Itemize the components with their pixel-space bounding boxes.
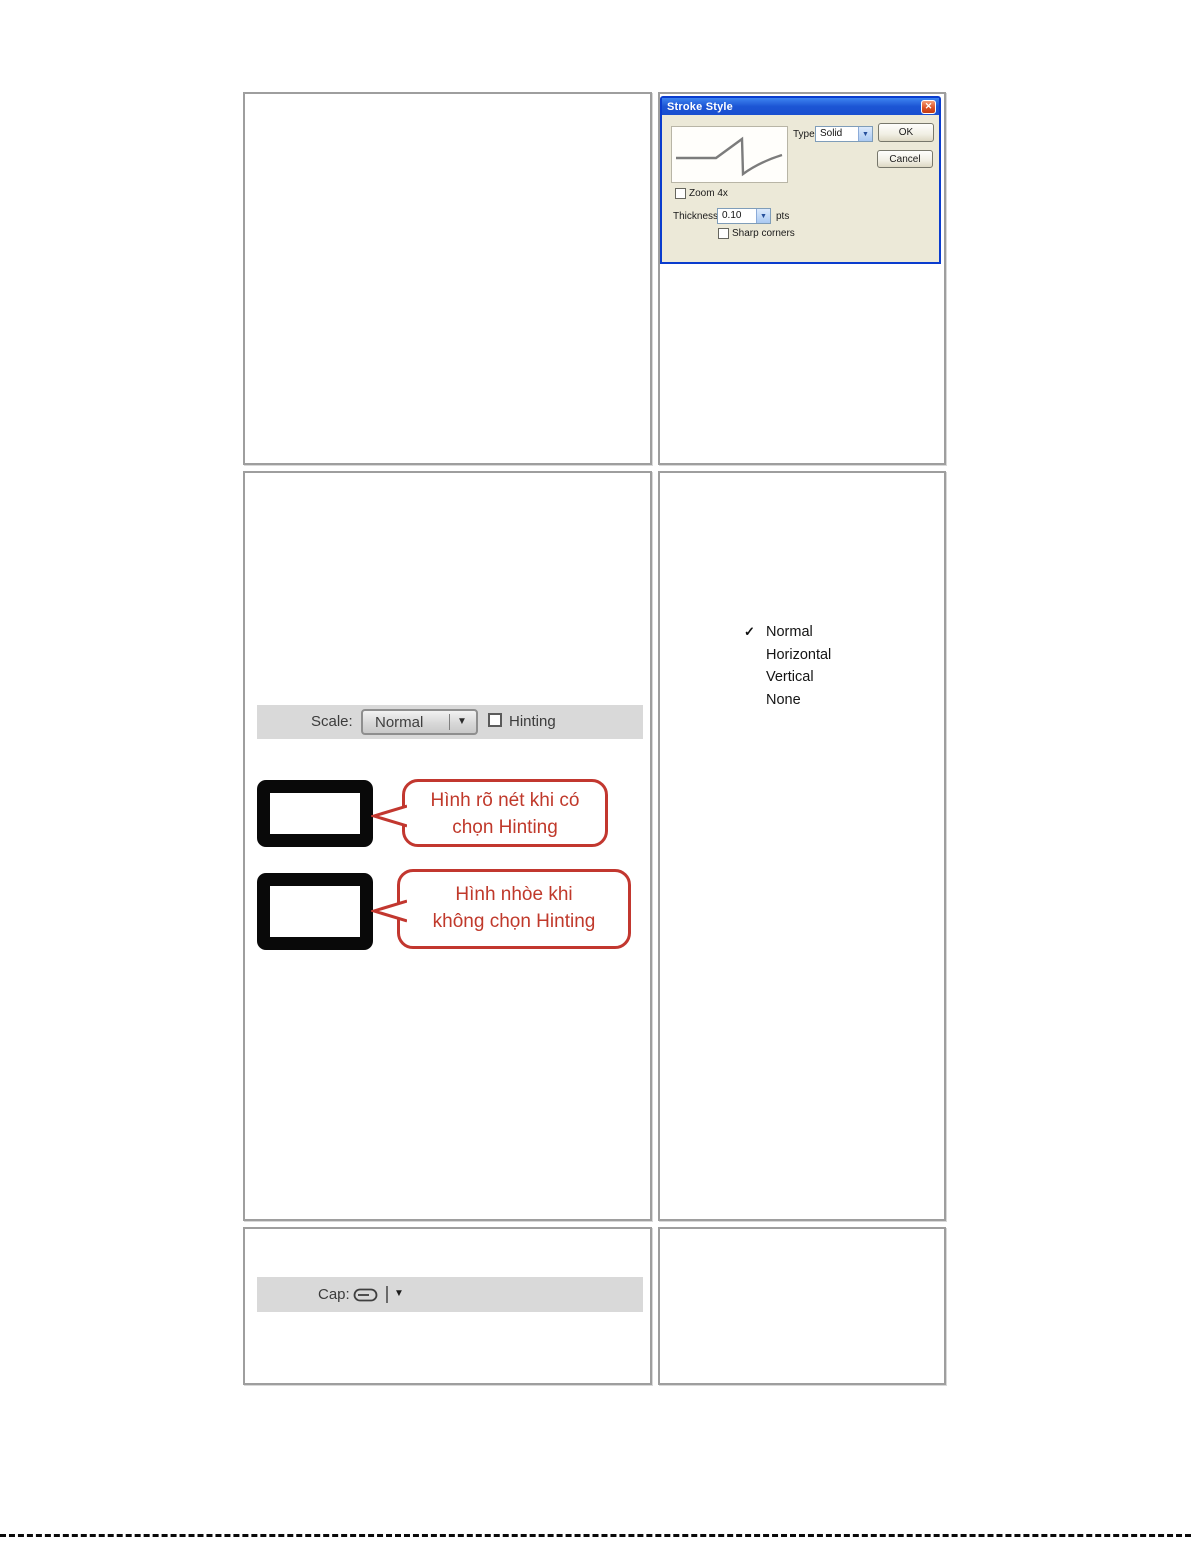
menu-item-label: Normal [766,624,813,640]
close-icon[interactable]: ✕ [921,100,936,114]
sharp-corners-label: Sharp corners [732,228,795,239]
callout-tail [371,803,407,829]
dialog-titlebar[interactable]: Stroke Style ✕ [662,98,939,115]
menu-item-label: None [766,692,801,708]
callout-hinting-on: Hình rõ nét khi có chọn Hinting [402,779,608,847]
table-cell-r3c1: Cap: ▼ [243,1227,652,1385]
thickness-label: Thickness: [673,211,721,222]
table-cell-r3c2 [658,1227,946,1385]
thickness-value: 0.10 [718,209,756,223]
hinting-label: Hinting [509,713,556,730]
menu-item-label: Vertical [766,669,814,685]
callout-line: Hình nhòe khi [400,881,628,908]
document-page: Stroke Style ✕ Zoom 4x Type: Solid ▼ OK … [0,0,1191,1541]
type-dropdown[interactable]: Solid ▼ [815,126,873,142]
stroke-preview [671,126,788,183]
callout-tail [371,898,407,924]
callout-line: chọn Hinting [405,814,605,841]
thickness-unit-label: pts [776,211,789,222]
hinted-shape-example [257,780,373,847]
chevron-down-icon[interactable]: ▼ [394,1288,404,1299]
sharp-corners-checkbox[interactable] [718,228,729,239]
table-cell-r2c2: ✓ Normal Horizontal Vertical None [658,471,946,1221]
page-divider [0,1534,1191,1537]
table-cell-r1c2: Stroke Style ✕ Zoom 4x Type: Solid ▼ OK … [658,92,946,465]
chevron-down-icon[interactable]: ▼ [858,127,872,141]
callout-hinting-off: Hình nhòe khi không chọn Hinting [397,869,631,949]
check-icon: ✓ [744,624,764,640]
scale-dropdown[interactable]: Normal ▼ [361,709,478,735]
thickness-dropdown[interactable]: 0.10 ▼ [717,208,771,224]
chevron-down-icon[interactable]: ▼ [457,716,467,727]
menu-item-label: Horizontal [766,647,831,663]
chevron-down-icon[interactable]: ▼ [756,209,770,223]
cap-label: Cap: [318,1286,350,1303]
callout-line: Hình rõ nét khi có [405,787,605,814]
scale-property-bar: Scale: Normal ▼ Hinting [257,705,643,739]
stroke-wave-icon [672,127,787,182]
cap-property-bar: Cap: ▼ [257,1277,643,1312]
zoom-4x-checkbox[interactable] [675,188,686,199]
table-cell-r1c1 [243,92,652,465]
callout-line: không chọn Hinting [400,908,628,935]
unhinted-shape-example [257,873,373,950]
table-cell-r2c1: Scale: Normal ▼ Hinting Hình rõ nét khi … [243,471,652,1221]
cancel-button[interactable]: Cancel [877,150,933,168]
hinting-checkbox[interactable] [488,713,502,727]
scale-label: Scale: [311,713,353,730]
type-value: Solid [816,127,858,141]
ok-button[interactable]: OK [878,123,934,142]
toolbar-separator [386,1286,388,1303]
dialog-title: Stroke Style [662,101,733,113]
round-cap-icon[interactable] [353,1288,378,1302]
stroke-style-dialog: Stroke Style ✕ Zoom 4x Type: Solid ▼ OK … [660,96,941,264]
zoom-4x-label: Zoom 4x [689,188,728,199]
type-label: Type: [793,129,817,140]
dropdown-separator [449,714,450,730]
scale-dropdown-value: Normal [375,714,423,731]
